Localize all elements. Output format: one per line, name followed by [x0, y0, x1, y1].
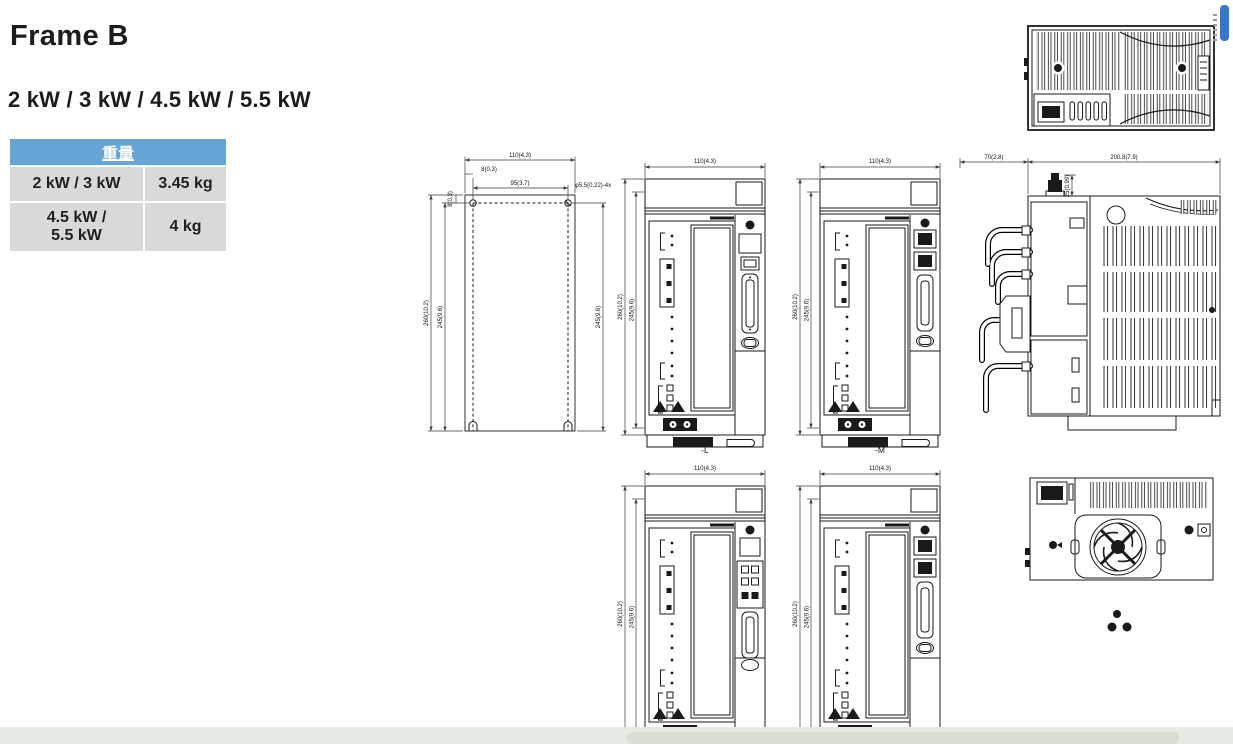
dim-inner-height: 245(9.6) — [630, 299, 636, 321]
dim-height: 260(10.2) — [793, 601, 799, 627]
view-label: -L — [701, 445, 709, 455]
dim-width: 110(4.3) — [694, 466, 716, 472]
page-title: Frame B — [10, 20, 129, 53]
dim-front-depth: 70(2.8) — [984, 155, 1003, 161]
table-row: 2 kW / 3 kW 3.45 kg — [10, 167, 226, 201]
dim-hole-pitch-right: 245(9.6) — [596, 306, 602, 328]
scrollbar-thumb[interactable] — [627, 732, 1179, 744]
dim-inner-height: 245(9.6) — [805, 299, 811, 321]
hole-note: φ5.5(0.22)-4x — [575, 183, 611, 189]
dim-width: 110(4.3) — [509, 153, 531, 159]
weight-cell: 4 kg — [145, 203, 226, 251]
dim-hole-spacing: 95(3.7) — [510, 181, 529, 187]
model-cell: 4.5 kW / 5.5 kW — [10, 203, 143, 251]
dimensions: 70(2.8) 200.8(7.9) 25(0.99) — [960, 155, 1220, 197]
dim-height: 260(10.2) — [618, 601, 624, 627]
drawing-front-view-bottom-left: 110(4.3) 260(10.2) 245(9.6) — [615, 462, 779, 740]
table-row: 4.5 kW / 5.5 kW 4 kg — [10, 203, 226, 251]
drawing-mounting-plate: 110(4.3) 8(0.3) 95(3.7) φ5.5(0.22)-4x 8(… — [415, 148, 619, 448]
weight-table-header: 重量 — [10, 139, 226, 165]
drawing-bottom-view — [1013, 468, 1225, 638]
dim-height: 260(10.2) — [424, 300, 430, 326]
dim-left-offset: 8(0.3) — [448, 191, 454, 207]
drawing-side-view: 70(2.8) 200.8(7.9) 25(0.99) — [950, 148, 1232, 458]
dim-inner-height: 245(9.6) — [630, 606, 636, 628]
watermark-logo-icon — [1220, 5, 1229, 41]
drawing-top-view — [1022, 18, 1220, 136]
dim-height: 260(10.2) — [618, 294, 624, 320]
dim-knob-height: 25(0.99) — [1065, 175, 1071, 197]
watermark-text-marks — [1213, 14, 1217, 44]
dim-inner-height: 245(9.6) — [805, 606, 811, 628]
dim-width: 110(4.3) — [869, 466, 891, 472]
dim-hole-pitch-left: 245(9.6) — [438, 306, 444, 328]
dim-body-depth: 200.8(7.9) — [1110, 155, 1137, 161]
dim-width: 110(4.3) — [694, 159, 716, 165]
catalog-page: Frame B 2 kW / 3 kW / 4.5 kW / 5.5 kW 重量… — [0, 0, 1233, 744]
dim-width: 110(4.3) — [869, 159, 891, 165]
dim-height: 260(10.2) — [793, 294, 799, 320]
dim-top-offset: 8(0.3) — [481, 167, 497, 173]
power-rating-subtitle: 2 kW / 3 kW / 4.5 kW / 5.5 kW — [8, 87, 311, 113]
drawing-front-view-l: 110(4.3) 260(10.2) 245(9.6) -L — [615, 155, 779, 455]
weight-table: 重量 2 kW / 3 kW 3.45 kg 4.5 kW / 5.5 kW 4… — [8, 137, 228, 253]
view-label: -M — [875, 445, 885, 455]
drawing-front-view-bottom-right: 110(4.3) 260(10.2) 245(9.6) — [790, 462, 954, 740]
drawing-front-view-m: 110(4.3) 260(10.2) 245(9.6) -M — [790, 155, 954, 455]
model-cell: 2 kW / 3 kW — [10, 167, 143, 201]
weight-cell: 3.45 kg — [145, 167, 226, 201]
